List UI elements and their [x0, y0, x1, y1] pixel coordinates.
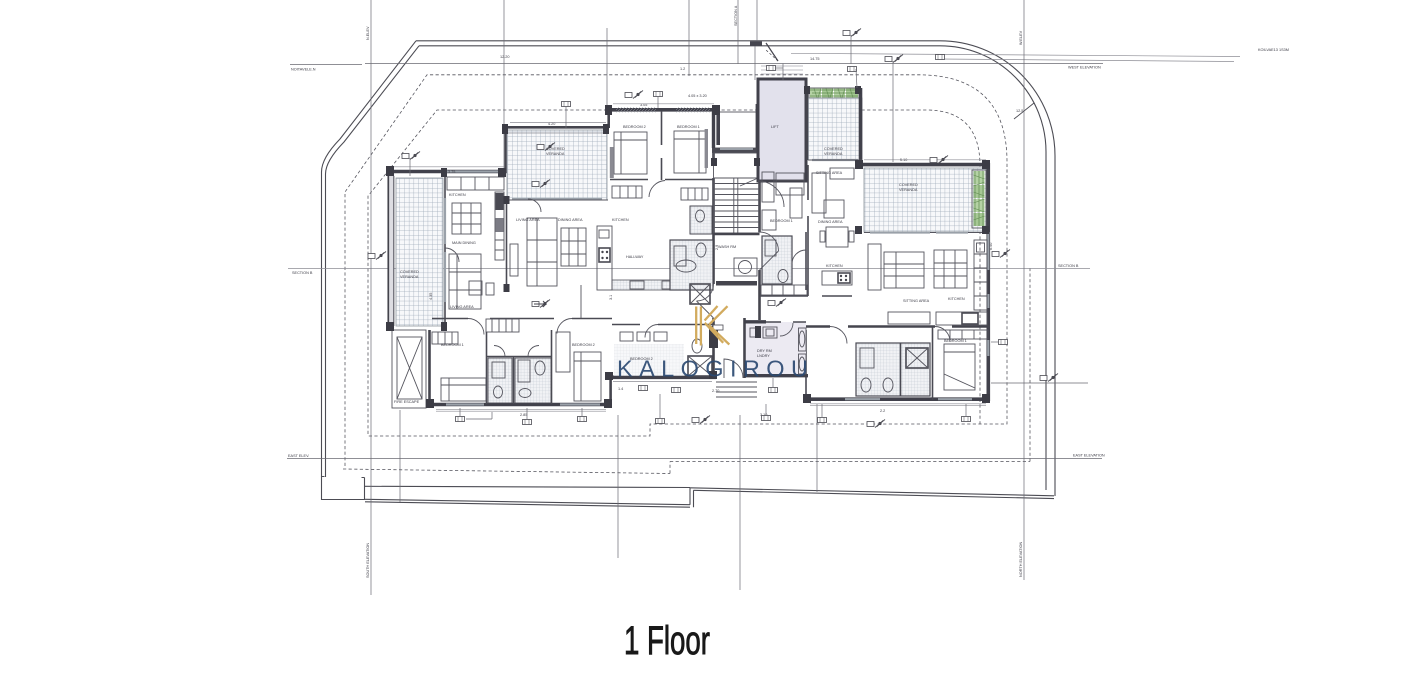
svg-text:BEDROOM 1: BEDROOM 1 — [770, 219, 793, 223]
svg-text:4.05 x 3.20: 4.05 x 3.20 — [688, 94, 707, 98]
svg-text:VERANDA: VERANDA — [824, 152, 843, 156]
svg-text:SECTION A: SECTION A — [734, 5, 738, 26]
svg-text:BEDROOM 1: BEDROOM 1 — [677, 125, 700, 129]
svg-text:12.20: 12.20 — [500, 55, 510, 59]
svg-text:NOITAVELE.N: NOITAVELE.N — [291, 68, 316, 72]
svg-text:LIVING AREA: LIVING AREA — [450, 305, 474, 309]
svg-text:2.85: 2.85 — [520, 413, 527, 417]
svg-text:HALLWAY: HALLWAY — [626, 255, 644, 259]
svg-text:VERANDA: VERANDA — [400, 275, 419, 279]
svg-text:3.1: 3.1 — [609, 295, 613, 300]
svg-text:1 Floor: 1 Floor — [624, 619, 710, 663]
svg-text:VERANDA: VERANDA — [899, 188, 918, 192]
svg-text:WEST ELEVATION: WEST ELEVATION — [1068, 66, 1101, 70]
svg-text:FIRE ESCAPE: FIRE ESCAPE — [394, 400, 420, 404]
svg-text:SECTION B: SECTION B — [1058, 264, 1079, 268]
svg-text:6.40: 6.40 — [989, 243, 993, 250]
svg-text:DINING AREA: DINING AREA — [558, 218, 583, 222]
svg-text:COVERED: COVERED — [824, 147, 843, 151]
svg-text:LIFT: LIFT — [771, 125, 779, 129]
svg-text:1.2: 1.2 — [680, 67, 685, 71]
svg-text:BEDROOM 1: BEDROOM 1 — [944, 339, 967, 343]
svg-text:12.5: 12.5 — [1016, 109, 1023, 113]
svg-text:BEDROOM 1: BEDROOM 1 — [441, 343, 464, 347]
svg-text:KITCHEN: KITCHEN — [826, 264, 843, 268]
svg-text:KALOGIROU: KALOGIROU — [617, 356, 814, 382]
svg-text:1.4: 1.4 — [618, 387, 623, 391]
svg-text:VERANDA: VERANDA — [546, 152, 565, 156]
svg-text:SECTION B: SECTION B — [292, 271, 313, 275]
svg-text:COVERED: COVERED — [400, 270, 419, 274]
svg-text:W.ELEV: W.ELEV — [1019, 30, 1023, 45]
svg-text:LIVING AREA: LIVING AREA — [516, 218, 540, 222]
svg-text:2.9: 2.9 — [715, 245, 719, 250]
svg-text:WASH RM: WASH RM — [718, 245, 736, 249]
svg-text:BEDROOM 2: BEDROOM 2 — [623, 125, 646, 129]
svg-text:COVERED: COVERED — [899, 183, 918, 187]
svg-text:N.ELEV: N.ELEV — [366, 26, 370, 40]
svg-text:SITTING AREA: SITTING AREA — [903, 299, 930, 303]
svg-text:14.75: 14.75 — [810, 57, 820, 61]
svg-text:SOUTH ELEVATION: SOUTH ELEVATION — [366, 543, 370, 578]
svg-text:2.70: 2.70 — [712, 389, 719, 393]
svg-text:KITCHEN: KITCHEN — [449, 193, 466, 197]
svg-text:NORTH ELEVATION: NORTH ELEVATION — [1019, 542, 1023, 577]
svg-text:KITCHEN: KITCHEN — [612, 218, 629, 222]
svg-text:DRY RM: DRY RM — [757, 349, 772, 353]
svg-text:BEDROOM 2: BEDROOM 2 — [572, 343, 595, 347]
svg-text:EAST ELEV.: EAST ELEV. — [288, 454, 309, 458]
svg-text:MAIN DINING: MAIN DINING — [452, 241, 476, 245]
svg-text:SITTING AREA: SITTING AREA — [816, 171, 843, 175]
svg-text:4.35: 4.35 — [429, 293, 433, 300]
svg-text:2.2: 2.2 — [880, 409, 885, 413]
svg-text:3.75: 3.75 — [448, 170, 455, 174]
svg-text:EAST ELEVATION: EAST ELEVATION — [1073, 454, 1105, 458]
svg-text:KITCHEN: KITCHEN — [948, 297, 965, 301]
svg-text:KOILVAE13 1S3M: KOILVAE13 1S3M — [1258, 48, 1289, 52]
svg-text:DINING AREA: DINING AREA — [818, 220, 843, 224]
